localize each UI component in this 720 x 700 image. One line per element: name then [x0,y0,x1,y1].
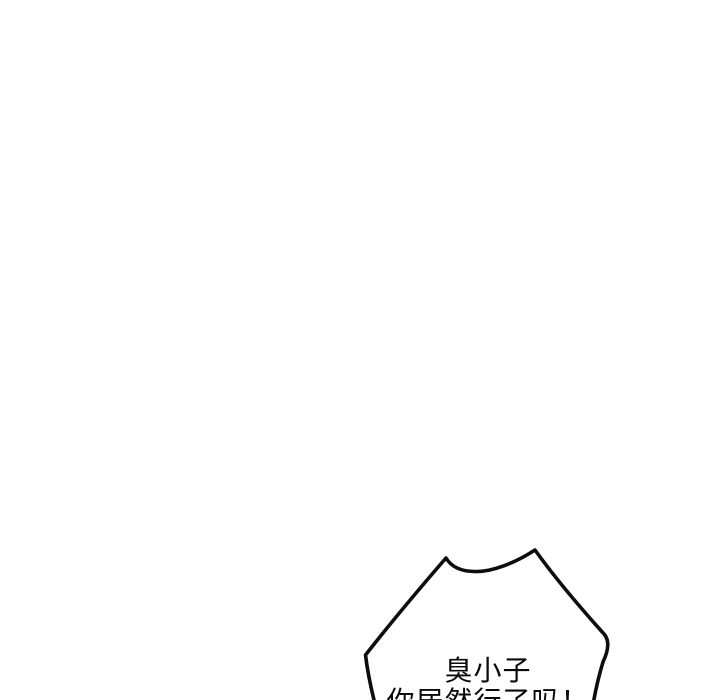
speech-bubble-text: 臭小子 你居然行了吗！ [366,655,610,700]
comic-panel: 臭小子 你居然行了吗！ [0,0,720,700]
speech-bubble [0,0,720,700]
dialogue-line-1: 臭小子 [366,655,610,686]
dialogue-line-2: 你居然行了吗！ [366,686,610,700]
